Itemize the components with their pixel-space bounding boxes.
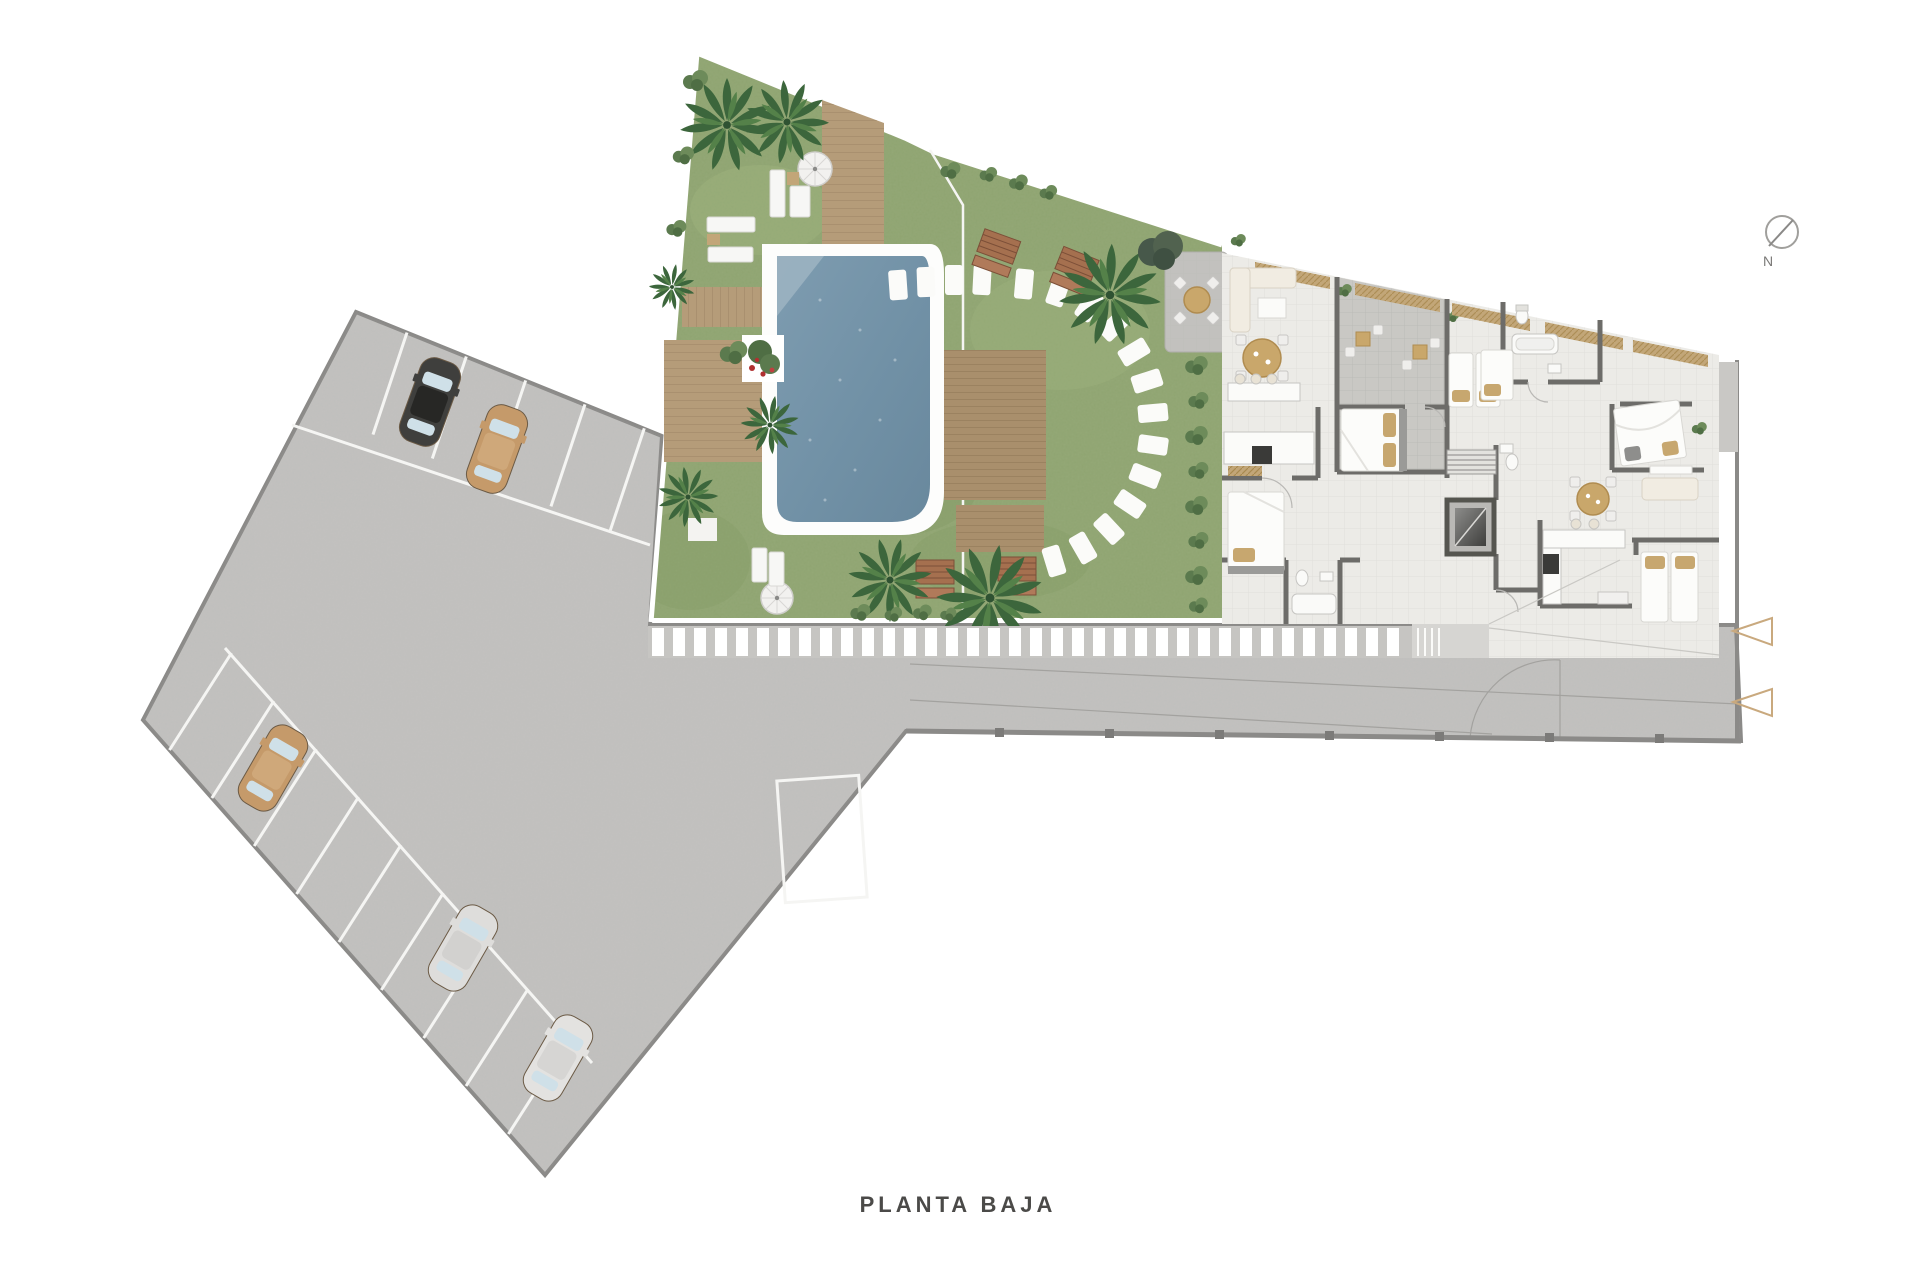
parasol-icon	[761, 582, 793, 614]
site-plan-page: N PLANTA BAJA	[0, 0, 1920, 1280]
sofa	[1642, 466, 1698, 500]
swimming-pool	[762, 244, 944, 535]
elevator	[1447, 500, 1494, 554]
plan-title: PLANTA BAJA	[860, 1192, 1057, 1217]
flower-planter	[742, 335, 784, 382]
compass: N	[1763, 216, 1798, 269]
double-bed	[1341, 409, 1407, 471]
dining-table	[1236, 335, 1288, 381]
pool-garden	[630, 40, 1240, 673]
balcony	[1719, 362, 1738, 452]
bed	[1228, 492, 1284, 574]
hatched-walkway	[648, 624, 1489, 658]
garden-patio	[1165, 252, 1228, 352]
bed	[1481, 350, 1513, 400]
plant	[1231, 234, 1246, 247]
dining-table	[1570, 477, 1616, 521]
apartment-building	[1222, 234, 1738, 658]
north-label: N	[1763, 253, 1773, 269]
site-plan: N PLANTA BAJA	[0, 0, 1920, 1280]
bed	[1613, 400, 1686, 467]
stairs	[1447, 450, 1496, 474]
